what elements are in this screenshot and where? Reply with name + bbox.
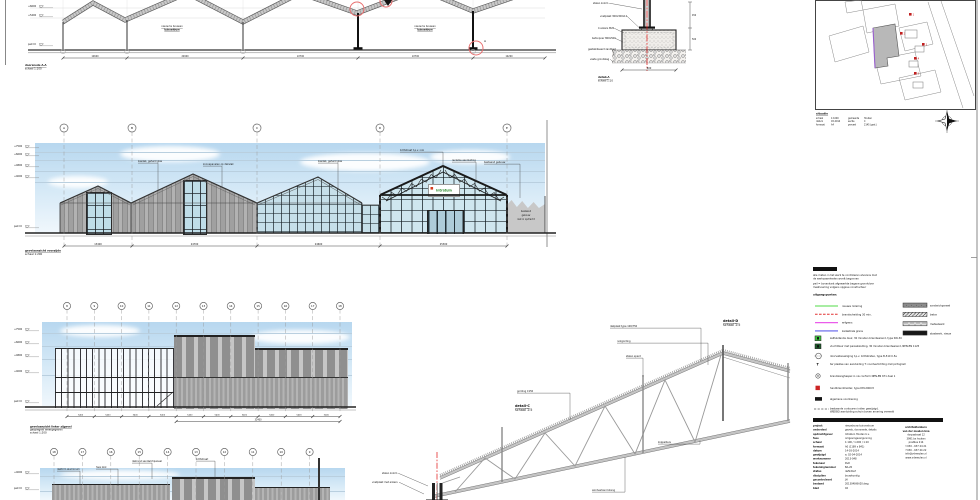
elevation-caption: gespiegeld weergegeven [30,428,63,432]
titleblock-value: A0 (1189 x 841) [845,445,864,448]
dim-tick [675,69,678,72]
site-marker-label: 5 [918,72,920,75]
site-marker-label: 4 [918,57,920,60]
titleblock-value: 02 [845,487,849,490]
level-flag [25,176,29,178]
sheet-border [6,0,978,500]
dim-value: 5400 [215,414,221,416]
elevation-caption: schaal 1:200 [25,252,43,256]
level-line [35,160,545,161]
grid-bubble [249,448,256,455]
bay-label: nieuw te bouwen [161,24,183,28]
grid-bubble [278,448,285,455]
level-flag [25,401,29,403]
callout-label: 4 ankers M20 [598,27,615,30]
legend-door-swatch-inner [817,345,819,347]
site-marker-label: 3 [926,43,928,46]
dim-tick [472,57,475,60]
legend-t-symbol: T [817,362,820,366]
level-flag [25,165,29,167]
level-flag [25,355,29,357]
company-line: architektenburo [905,426,927,429]
grid-label: 18 [338,304,342,308]
north-arrow [935,109,959,133]
grid-label: 15 [256,304,260,308]
level-label: +6600 [14,341,23,344]
legend-black-symbol [815,397,822,401]
titleblock-key: tekenaar [813,462,826,465]
side-glass-band [55,392,174,393]
leader-line [614,28,624,33]
dim-tick [131,245,134,248]
level-label: peil=0 [14,225,22,228]
legend-door-swatch [815,336,821,341]
grid-label: 16 [284,304,288,308]
grid-label: 12 [174,304,178,308]
level-label: +4000 [14,175,23,178]
section-caption: doorsnede A-A [25,63,46,67]
site-subject-building [873,24,899,68]
elevation-caption: gevelaanzicht voorzijde [25,249,61,253]
dim-tick [126,57,129,60]
titleblock-header-bar: renvooi: op de aanvraag van toepassing z… [813,418,943,422]
grid-bubble [50,448,57,455]
bay-label: tuincentrum [164,27,180,31]
grid-bubble [306,448,313,455]
grid-bubble [336,302,343,309]
titleblock-key: schaal [813,441,822,444]
titleblock-value: BA-20 [845,466,853,469]
titleblock-value: definitief [845,470,856,473]
grid-bubble [128,124,136,132]
dim-tick [175,415,178,418]
dim-value: 500 [692,38,697,41]
legend-intro-line: maatvoering volgens opgave constructeur [813,285,867,289]
legend-red-symbol [816,386,820,390]
legend-intro-line: peil = bovenkant afgewerkte begane grond… [813,282,875,286]
level-flag [39,15,43,17]
dim-tick [202,415,205,418]
callout-label: stalen spant [626,355,641,358]
leader-line [399,482,424,494]
dim-tick [66,415,69,418]
dim-value: 5400 [297,414,303,416]
legend-item-label: beton [930,313,938,317]
side-plinth [174,377,348,408]
company-line: f 030 - 637 44 22 [906,449,927,452]
grid-label: 10 [120,304,124,308]
dim-value: 450 [692,14,697,17]
grid-label: 8 [66,304,68,308]
dim-tick [339,420,342,423]
grid-label: 16 [109,450,113,454]
grid-label: 9 [309,450,311,454]
drawing-linework: nieuw te bouwentuincentrumtuincentrumnie… [0,0,980,500]
leader-line [609,3,642,9]
dim-value: 32400 [255,418,263,421]
dim-tick [339,415,342,418]
grid-label: 12 [223,450,227,454]
titleblock-value: 1:100 / 1:200 / 1:10 [845,441,869,444]
detail-title: detail-C [515,404,530,408]
dim-value: 5400 [242,414,248,416]
legend-swatch-box [903,322,927,326]
titleblock-key: datum [813,449,822,452]
titleblock-value: 14-03-2014 [845,449,859,452]
callout-label: dakrand sandwichpaneel [132,460,162,463]
window-building-1 [86,192,112,235]
grid-bubble [200,302,207,309]
level-flag [25,146,29,148]
grid-bubble [118,302,125,309]
grid-label: B [131,126,133,130]
company-line: dorpsstraat 12 [907,434,925,437]
legend-row-label: vluchtdeur met panieksluiting, 30 minute… [830,344,920,348]
level-label: +5400 [28,14,37,17]
titleblock-key: fase [813,437,819,440]
grid-label: E [506,126,508,130]
level-flag [25,329,29,331]
dim-tick [63,245,66,248]
legend-intro-line: de werkzaamheden wordt begonnen [813,276,859,280]
elevation-caption: gevelaanzicht linker zijgevel [30,425,72,429]
site-note-key: datum [816,120,823,123]
site-note-key: formaat [816,123,825,126]
level-flag [25,342,29,344]
legend-swatch-box [903,331,927,335]
company-line: 3991 bx houten [907,437,926,440]
site-note-key: sectie [848,120,855,123]
grid-label: 13 [194,450,198,454]
grid-bubble [173,302,180,309]
level-line [42,333,352,334]
legend-item-label: metselwerk [930,322,945,326]
grid-bubble [79,448,86,455]
level-flag [25,472,29,474]
level-label: +7500 [14,328,23,331]
dim-tick [147,415,150,418]
site-marker [909,13,912,16]
dim-tick [175,420,178,423]
site-note-value: 2145 (ged.) [864,123,877,126]
dim-value: 24700 [191,243,199,246]
dim-tick [379,245,382,248]
titleblock-key: blad [813,487,819,490]
site-note-value: A4 [831,123,834,126]
site-plan-drawing [816,0,976,110]
legend-principles: uitgangspunten: [813,293,837,297]
cloud [60,325,140,337]
level-flag [39,44,43,46]
site-marker [914,57,917,60]
site-marker-label: 1 [913,13,915,16]
grid-bubble [227,302,234,309]
titleblock-value: a: 02-04-2014 [845,454,862,457]
grid-label: A [63,126,66,130]
dim-tick [229,415,232,418]
dim-tick [284,415,287,418]
bay-label: nieuw te bouwen [414,24,436,28]
level-line [35,171,545,172]
grid-bubble [60,124,68,132]
callout-label: nokgording [617,340,631,343]
legend-row-label: bestaande contouren indien gewijzigd, [830,407,879,411]
legend-row-label: brandslanghaspel in nis conform NEN-EN 6… [830,374,896,378]
leader-line [615,38,623,42]
company-line: t 030 - 637 44 21 [906,445,927,448]
titleblock-key: gecontroleerd [813,478,832,481]
entrance-doors [427,210,464,234]
titleblock-value: Intratuin Houten b.v. [845,433,870,436]
grid-label: 11 [147,304,151,308]
site-note-value: 03-2014 [831,120,841,123]
titleblock-key: opdrachtgever [813,433,834,436]
dim-tick [93,415,96,418]
grid-label: 13 [202,304,206,308]
site-note-key: schaal [816,117,823,120]
titleblock-value: JH [844,478,848,481]
site-note-key: perceel [848,123,856,126]
dim-tick [256,245,259,248]
legend-row-label: algemene voorziening [830,397,858,401]
isometric-truss-drawing [426,345,790,500]
callout-label: voetplaat met ankers [372,481,398,484]
legend-row-label: doorvalbeveiliging t.p.v. lichtstraten, … [830,354,897,358]
dim-value: 14200 [506,55,514,58]
dim-value: 5400 [160,414,166,416]
grid-bubble [376,124,384,132]
site-note-value: 1:1000 [831,117,839,120]
site-marker-label: 2 [904,32,906,35]
grid-label: 10 [279,450,283,454]
grid-label: 18 [52,450,56,454]
grid-label: 11 [251,450,255,454]
section-caption: schaal 1:100 [25,66,42,70]
dim-value: 5400 [269,414,275,416]
bay-label: tuincentrum [417,27,433,31]
level-label: peil=0 [14,487,22,490]
leader-line [627,16,639,27]
legend-item-label: staalwerk, nieuw [930,331,951,335]
legend-badge-dot [817,375,818,376]
legend-item-label: nieuwe riolering [842,304,863,308]
dim-value: 5400 [324,414,330,416]
elevation-caption: schaal 1:200 [30,431,47,435]
foundation-detail-drawing [612,0,692,71]
level-flag [25,371,29,373]
grid-label: 9 [93,304,95,308]
level-label: +6600 [14,153,23,156]
grid-bubble [255,302,262,309]
dim-value: 22700 [297,55,305,58]
grid-bubble [503,124,511,132]
callout-label: dakplaat type 106/750 [610,325,638,328]
level-label: peil=0 [14,400,22,403]
detail-title: detail-D [723,319,738,323]
drawing-sheet: legenda renvooi: op de aanvraag van toep… [0,0,980,500]
grid-bubble [221,448,228,455]
level-flag [25,226,29,228]
titleblock-value: gevels, doorsnede, details [845,429,877,432]
grid-bubble [192,448,199,455]
titleblock-key: discipline [813,474,826,477]
level-label: +6600 [28,5,37,8]
dim-tick [242,57,245,60]
dim-value: 800 [647,67,652,70]
titleblock-value: 2013-048 [845,458,857,461]
callout-label: lichtstraat [196,458,208,461]
company-line: van der meulen bna [903,430,930,433]
legend-item-label: erfgrens [842,321,853,325]
callout-label: stalen kolom [382,472,398,475]
grid-label: 17 [81,450,85,454]
callout-label: koppelbuis [658,441,672,444]
titleblock-key: project [813,425,823,428]
dim-tick [120,415,123,418]
grid-bubble [107,448,114,455]
dim-value: 5400 [78,414,84,416]
level-label: +4800 [14,164,23,167]
titleblock-value: RvD [845,462,850,465]
grid-bubble [136,448,143,455]
callout-label: stalen kolom [593,2,609,5]
level-label: +4000 [14,471,23,474]
site-marker [900,32,903,35]
dim-tick [311,415,314,418]
rear-block-tall [172,477,255,500]
dim-tick [544,57,547,60]
titleblock-value: nieuwbouw tuincentrum [845,425,875,428]
leader-line [398,473,428,486]
grid-bubble [253,124,261,132]
level-flag [25,488,29,490]
grid-label: 14 [229,304,233,308]
dim-tick [506,245,509,248]
section-marker-flag [384,0,392,6]
company-line: postbus 214 [909,441,924,444]
titleblock-key: onderdeel [813,429,827,432]
titleblock-key: werknummer [813,458,832,461]
grid-label: 14 [166,450,170,454]
dim-value: 25300 [440,243,448,246]
leader-line [610,59,613,62]
grid-bubble [63,302,70,309]
callout-label: windverband stang [592,489,615,492]
grid-bubble [309,302,316,309]
callout-label: vaste grondslag [590,58,610,61]
rear-block-left [52,484,170,500]
legend-row-label: WBDBO aanduiding schuin boven arcering v… [830,410,895,414]
detail-title: schaal 1:5 [723,323,740,327]
grid-bubble [91,302,98,309]
legend-badge-symbol [816,374,820,378]
titleblock-key: bestand [813,483,824,486]
callout-label: gording C150 [517,390,534,393]
cloud [300,153,430,171]
site-marker [922,43,925,46]
callout-label: voetplaat 300x300x12 [600,15,628,18]
titleblock-value: bouwkundig [845,474,860,477]
facade-connector [362,205,380,233]
site-note-key: gemeente [848,117,860,120]
window-building-2 [183,180,207,235]
dim-tick [357,57,360,60]
site-marker [914,72,917,75]
titleblock-key: gewijzigd [813,454,826,457]
titleblock-key: status [813,470,822,473]
callout-label: betonpoer 800x500 [592,37,616,40]
company-line: info@vdmeulen.nl [905,453,927,456]
legend-door-swatch-inner [817,337,819,339]
dim-value: 22700 [412,55,420,58]
cloud [60,470,180,480]
grid-label: 17 [311,304,315,308]
dim-value: 5400 [187,414,193,416]
dim-value: 24600 [315,243,323,246]
legend-intro-line: alle maten in het werk te controleren al… [813,273,877,277]
grid-label: 15 [137,450,141,454]
logo-sign [428,184,460,197]
detail-title: schaal 1:5 [515,408,532,412]
legend-header-bar: legenda [813,267,837,271]
legend-item-label: brandscheiding 30 min. [842,312,872,316]
dim-tick [62,57,65,60]
dim-value: 5400 [133,414,139,416]
legend-swatch-box [903,303,927,307]
detail-reference: A [484,39,487,43]
dim-tick [257,415,260,418]
detail-caption: detail-A [598,75,609,79]
grid-bubble [282,302,289,309]
grid-label: D [379,126,382,130]
titleblock-value: omgevingsvergunning [845,437,872,440]
titleblock-key: tekeningnummer [813,466,837,469]
legend-swatch-box [903,312,927,316]
grid-bubble [145,302,152,309]
rear-downpipe [318,458,320,500]
dim-value: 12600 [92,55,100,58]
callout-label: gestabiliseerd zandbed [588,48,616,51]
company-line: www.vdmeulen.nl [905,456,927,459]
legend-row-label: ter plaatse van aanduiding T: noodverlic… [830,362,907,366]
level-label: +4000 [14,370,23,373]
titleblock-value: 2013048-BA20.dwg [845,483,869,486]
legend-item-label: kadastrale grens [842,329,864,333]
level-flag [39,6,43,8]
grid-bubble [164,448,171,455]
legend-item-label: sandwichpaneel [930,303,950,307]
detail-caption: schaal 1:10 [598,78,613,82]
legend-door-swatch [815,344,821,349]
site-note-value: C [864,120,866,123]
level-label: +4800 [14,354,23,357]
legend-row-label: handbrandmelder, type DM-2000rt [830,386,874,390]
legend-row-label: zelfsluitende deur, 30 minuten brandwere… [830,336,902,340]
site-plan-title: situatie [816,112,828,116]
site-note-value: Houten [864,117,873,120]
dim-value: 13400 [94,243,102,246]
grid-label: C [256,126,258,130]
bay-label: tuincentrum [164,27,180,31]
leader-line [612,49,614,55]
level-flag [25,154,29,156]
dim-value: 5400 [105,414,111,416]
level-line [35,152,545,153]
level-label: +7500 [14,145,23,148]
dim-value: 22900 [182,55,190,58]
side-glass-band [55,377,174,378]
titleblock-key: formaat [813,445,825,448]
